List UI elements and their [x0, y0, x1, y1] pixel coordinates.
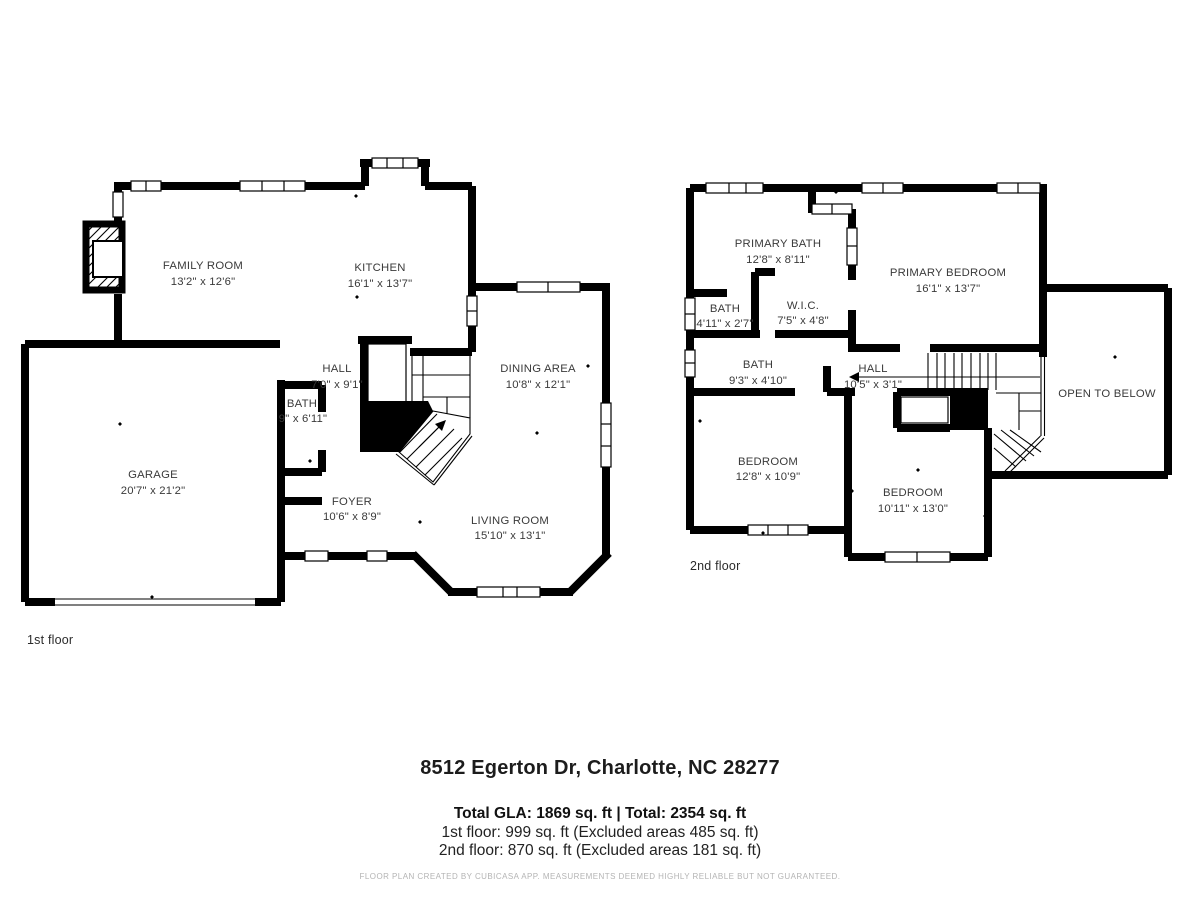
- room-dims-hall2: 10'5" x 3'1": [844, 379, 902, 391]
- room-dims-foyer: 10'6" x 8'9": [323, 511, 381, 523]
- first-floor-area-line: 1st floor: 999 sq. ft (Excluded areas 48…: [0, 824, 1200, 842]
- total-area-line: Total GLA: 1869 sq. ft | Total: 2354 sq.…: [0, 805, 1200, 823]
- room-label-primary-bath: PRIMARY BATH: [735, 238, 822, 250]
- room-dims-living-room: 15'10" x 13'1": [474, 530, 545, 542]
- second-floor-caption: 2nd floor: [690, 559, 740, 573]
- room-label-family-room: FAMILY ROOM: [163, 260, 243, 272]
- first-floor-caption: 1st floor: [27, 633, 73, 647]
- second-floor-area-line: 2nd floor: 870 sq. ft (Excluded areas 18…: [0, 842, 1200, 860]
- room-dims-primary-bath: 12'8" x 8'11": [746, 254, 810, 266]
- room-label-bedroom2: BEDROOM: [883, 487, 943, 499]
- disclaimer-text: FLOOR PLAN CREATED BY CUBICASA APP. MEAS…: [0, 872, 1200, 881]
- room-dims-hall: 7'0" x 9'1": [311, 379, 363, 391]
- room-dims-family-room: 13'2" x 12'6": [171, 276, 236, 288]
- room-label-bedroom1: BEDROOM: [738, 456, 798, 468]
- room-label-foyer: FOYER: [332, 496, 372, 508]
- room-label-garage: GARAGE: [128, 469, 178, 481]
- second-floor-plan: PRIMARY BATH 12'8" x 8'11" BATH 4'11" x …: [660, 150, 1200, 580]
- room-dims-bedroom1: 12'8" x 10'9": [736, 471, 801, 483]
- room-dims-kitchen: 16'1" x 13'7": [348, 278, 413, 290]
- room-label-bath: BATH: [287, 398, 317, 410]
- room-dims-garage: 20'7" x 21'2": [121, 485, 186, 497]
- address-title: 8512 Egerton Dr, Charlotte, NC 28277: [0, 757, 1200, 780]
- room-dims-bath-small: 4'11" x 2'7": [696, 318, 753, 330]
- room-label-kitchen: KITCHEN: [354, 262, 405, 274]
- room-dims-bath2: 9'3" x 4'10": [729, 375, 787, 387]
- room-dims-dining-area: 10'8" x 12'1": [506, 379, 571, 391]
- room-dims-bath: 9" x 6'11": [279, 413, 327, 425]
- first-floor-plan: FAMILY ROOM 13'2" x 12'6" KITCHEN 16'1" …: [0, 150, 660, 660]
- room-label-open-to-below: OPEN TO BELOW: [1058, 388, 1156, 400]
- stair-wall-block: [950, 388, 988, 430]
- floorplan-page: FAMILY ROOM 13'2" x 12'6" KITCHEN 16'1" …: [0, 0, 1200, 900]
- garage-door: [55, 597, 255, 607]
- room-label-primary-bedroom: PRIMARY BEDROOM: [890, 267, 1006, 279]
- closet-door-leaf: [901, 397, 948, 423]
- first-floor-stairs: [360, 344, 472, 485]
- room-dims-bedroom2: 10'11" x 13'0": [878, 503, 948, 515]
- room-label-bath-small: BATH: [710, 303, 740, 315]
- room-label-dining-area: DINING AREA: [500, 363, 576, 375]
- room-label-living-room: LIVING ROOM: [471, 515, 549, 527]
- room-dims-primary-bedroom: 16'1" x 13'7": [916, 283, 981, 295]
- room-label-hall2: HALL: [858, 363, 887, 375]
- room-label-hall: HALL: [322, 363, 351, 375]
- room-dims-wic: 7'5" x 4'8": [777, 315, 829, 327]
- room-label-wic: W.I.C.: [787, 300, 819, 312]
- room-label-bath2: BATH: [743, 359, 773, 371]
- fireplace: [86, 224, 123, 290]
- first-floor-room-labels: FAMILY ROOM 13'2" x 12'6" KITCHEN 16'1" …: [121, 260, 576, 542]
